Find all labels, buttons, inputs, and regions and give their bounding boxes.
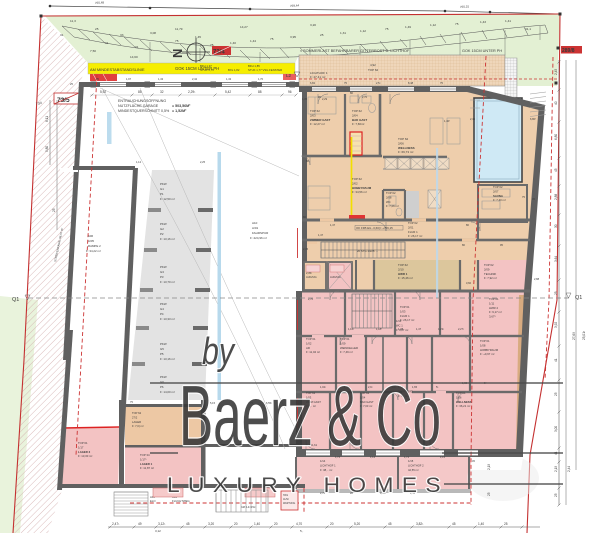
svg-text:1,43: 1,43 (480, 20, 486, 24)
svg-text:1,35: 1,35 (302, 97, 308, 101)
svg-text:2,19: 2,19 (487, 464, 491, 470)
svg-text:7,50: 7,50 (90, 49, 96, 53)
svg-text:F: 13,30 m²: F: 13,30 m² (78, 454, 92, 458)
svg-text:Baerz & Co: Baerz & Co (179, 369, 441, 464)
svg-text:by: by (202, 331, 236, 373)
svg-text:AUSI: AUSI (283, 498, 289, 501)
svg-text:F: 9,17 m²: F: 9,17 m² (489, 310, 502, 314)
svg-text:1/17¹: 1/17¹ (140, 457, 146, 461)
svg-text:25: 25 (487, 492, 491, 496)
svg-text:31,1: 31,1 (525, 27, 531, 31)
svg-text:STUK 1,75: STUK 1,75 (200, 68, 214, 72)
svg-text:AUFZUG: AUFZUG (306, 275, 317, 279)
svg-text:3,00: 3,00 (554, 426, 558, 432)
svg-text:BXL 1,82: BXL 1,82 (228, 68, 240, 72)
svg-text:A10: A10 (252, 221, 258, 225)
svg-text:760,48: 760,48 (95, 0, 105, 5)
svg-text:75: 75 (175, 39, 179, 43)
svg-text:4,70: 4,70 (296, 522, 302, 526)
svg-text:88: 88 (258, 90, 262, 94)
svg-text:F: 12,50 m²: F: 12,50 m² (160, 197, 175, 201)
svg-text:F: 7,92 m²: F: 7,92 m² (484, 276, 497, 280)
svg-text:F: 26,17 m²: F: 26,17 m² (400, 318, 414, 322)
svg-text:1,40: 1,40 (254, 522, 260, 526)
svg-text:1,47: 1,47 (330, 223, 336, 227)
svg-text:3,08: 3,08 (150, 31, 156, 35)
svg-text:= 503,56M²: = 503,56M² (172, 104, 191, 108)
svg-text:1,41: 1,41 (505, 19, 511, 23)
svg-text:A/01: A/01 (252, 226, 259, 230)
svg-text:F: 12,27 m²: F: 12,27 m² (310, 122, 325, 126)
svg-text:WELLNESS: WELLNESS (398, 146, 415, 150)
svg-text:G4: G4 (160, 307, 164, 311)
svg-text:5,20: 5,20 (354, 522, 360, 526)
svg-text:ZIMMER GAST: ZIMMER GAST (310, 118, 330, 122)
svg-text:25: 25 (554, 291, 558, 295)
svg-text:AUFZUG: AUFZUG (330, 275, 341, 279)
svg-text:25: 25 (504, 522, 508, 526)
svg-text:85: 85 (138, 90, 142, 94)
svg-text:BAD GAST: BAD GAST (352, 118, 367, 122)
svg-text:TOP 62: TOP 62 (398, 263, 408, 267)
svg-text:F: 7,0( m²: F: 7,0( m² (132, 424, 144, 428)
svg-text:20: 20 (274, 522, 278, 526)
svg-text:2,29: 2,29 (322, 97, 328, 101)
svg-text:HOBBYRAUM: HOBBYRAUM (480, 348, 499, 352)
svg-text:31: 31 (105, 41, 109, 45)
svg-text:AR: AR (306, 346, 310, 350)
svg-text:WEINKELLER: WEINKELLER (340, 346, 358, 350)
svg-text:31: 31 (135, 45, 139, 49)
svg-text:WARTUNG: WARTUNG (283, 502, 295, 505)
svg-text:TOP 61: TOP 61 (456, 391, 466, 395)
svg-text:TOP 62: TOP 62 (493, 185, 503, 189)
svg-text:25: 25 (320, 33, 324, 37)
svg-text:HWR 1: HWR 1 (398, 272, 408, 276)
svg-text:TOP 62: TOP 62 (132, 411, 142, 415)
svg-text:1/03: 1/03 (400, 309, 406, 313)
svg-text:F: +0,67 m²: F: +0,67 m² (480, 352, 494, 356)
svg-text:4,92: 4,92 (370, 63, 376, 67)
svg-text:G3: G3 (160, 270, 164, 274)
svg-text:NUTZFLÄCHE GARAGE: NUTZFLÄCHE GARAGE (118, 104, 159, 108)
svg-text:PKW: PKW (160, 375, 167, 379)
svg-text:AM MINDESTABSTANDSLINIE: AM MINDESTABSTANDSLINIE (90, 67, 145, 72)
svg-text:1,12: 1,12 (360, 29, 366, 33)
svg-text:6,80³: 6,80³ (530, 117, 536, 121)
svg-text:TOP 62: TOP 62 (352, 109, 362, 113)
svg-text:2/01: 2/01 (408, 225, 414, 229)
svg-text:1,97: 1,97 (126, 77, 132, 81)
svg-text:5,42: 5,42 (225, 90, 231, 94)
svg-text:TOP 61: TOP 61 (400, 305, 410, 309)
svg-text:P5: P5 (160, 352, 164, 356)
svg-text:F: 14,00 m²: F: 14,00 m² (160, 390, 175, 394)
svg-text:LUXURY HOMES: LUXURY HOMES (167, 473, 449, 497)
svg-text:1/08: 1/08 (480, 343, 486, 347)
svg-text:1,31: 1,31 (340, 31, 346, 35)
svg-text:2,88: 2,88 (534, 277, 540, 281)
svg-text:TOP 62: TOP 62 (368, 68, 379, 72)
svg-text:1/10: 1/10 (396, 319, 402, 323)
svg-text:FAHRSPUR: FAHRSPUR (252, 231, 269, 235)
svg-text:1,38: 1,38 (398, 327, 404, 331)
svg-text:5,.: 5,. (300, 529, 304, 533)
svg-text:1,12: 1,12 (136, 160, 142, 164)
svg-text:TOP 34: TOP 34 (140, 453, 150, 457)
svg-text:HOBBYRAUM: HOBBYRAUM (352, 186, 372, 190)
svg-text:27,69: 27,69 (572, 332, 576, 340)
svg-text:TOP 62: TOP 62 (408, 221, 418, 225)
svg-text:2,35: 2,35 (303, 247, 309, 251)
svg-text:LAGER 2: LAGER 2 (78, 450, 91, 454)
svg-text:3,82¹: 3,82¹ (416, 522, 423, 526)
svg-text:1,18³: 1,18³ (376, 327, 382, 331)
svg-text:11,79: 11,79 (175, 27, 183, 31)
svg-text:A06: A06 (88, 234, 94, 238)
svg-text:AM 3-4=15m: AM 3-4=15m (241, 505, 256, 509)
svg-text:F: 7,40 m²: F: 7,40 m² (493, 198, 506, 202)
svg-text:2,19: 2,19 (554, 466, 558, 472)
svg-text:2,35¹: 2,35¹ (306, 271, 312, 275)
svg-text:1/11: 1/11 (489, 301, 495, 305)
svg-text:F: 34,56 m²: F: 34,56 m² (352, 190, 367, 194)
svg-text:PKW: PKW (160, 222, 167, 226)
svg-text:TOP 62: TOP 62 (386, 191, 396, 195)
svg-text:F: 36,21 m²: F: 36,21 m² (456, 404, 470, 408)
svg-text:F: 224,96 m²: F: 224,96 m² (250, 236, 267, 240)
svg-text:11,3: 11,3 (70, 19, 76, 23)
svg-text:G5: G5 (160, 347, 164, 351)
svg-text:LAGER: LAGER (132, 420, 141, 424)
svg-text:30: 30 (554, 224, 558, 228)
svg-text:1,43: 1,43 (158, 77, 164, 81)
svg-text:WC 1: WC 1 (396, 323, 403, 327)
svg-text:TOP 61: TOP 61 (340, 337, 350, 341)
svg-text:6,80: 6,80 (554, 134, 558, 140)
svg-text:F: 7,06 m²: F: 7,06 m² (386, 204, 399, 208)
svg-text:P6: P6 (160, 385, 164, 389)
svg-text:F: 13,33 m²: F: 13,33 m² (160, 317, 175, 321)
svg-text:20 STG 14/28 →: 20 STG 14/28 → (357, 249, 378, 253)
svg-text:3,20: 3,20 (310, 23, 316, 27)
svg-text:40: 40 (554, 101, 558, 105)
svg-text:F: 34,22 m²: F: 34,22 m² (86, 249, 101, 253)
svg-text:2,45: 2,45 (554, 69, 558, 75)
svg-text:1,49: 1,49 (405, 25, 411, 29)
svg-text:F: 13,70 m²: F: 13,70 m² (160, 280, 175, 284)
svg-text:3,20: 3,20 (208, 522, 214, 526)
svg-text:5,80: 5,80 (45, 146, 49, 152)
svg-text:3,12: 3,12 (155, 529, 161, 533)
svg-text:45: 45 (186, 522, 190, 526)
svg-text:3,60: 3,60 (466, 281, 472, 285)
svg-text:96: 96 (288, 90, 292, 94)
svg-text:45: 45 (452, 522, 456, 526)
svg-text:P3: P3 (160, 275, 164, 279)
svg-text:2/08: 2/08 (386, 195, 392, 199)
svg-text:27/2: 27/2 (132, 415, 138, 419)
svg-text:LAGER 1: LAGER 1 (140, 462, 153, 466)
svg-text:2,27¹: 2,27¹ (458, 327, 464, 331)
svg-text:TECHNIK: TECHNIK (484, 272, 496, 276)
svg-text:2,70: 2,70 (308, 297, 314, 301)
svg-text:5,92: 5,92 (100, 90, 106, 94)
svg-text:F: 69,73 m²: F: 69,73 m² (398, 150, 413, 154)
svg-text:2/03: 2/03 (310, 113, 316, 117)
svg-text:2/04: 2/04 (352, 113, 358, 117)
svg-text:49: 49 (138, 522, 142, 526)
svg-text:1,23¹: 1,23¹ (438, 327, 444, 331)
svg-text:PKW: PKW (160, 302, 167, 306)
svg-text:14,27: 14,27 (240, 25, 248, 29)
svg-text:1,16¹: 1,16¹ (348, 327, 354, 331)
svg-text:3,67³: 3,67³ (489, 315, 495, 319)
svg-text:73/4: 73/4 (213, 50, 225, 56)
svg-text:≈ SOMMERLAST BEFAHRBARER GITTE: ≈ SOMMERLAST BEFAHRBARER GITTERROST Ü. L… (300, 49, 410, 53)
svg-text:2/06: 2/06 (398, 141, 404, 145)
svg-text:Q1: Q1 (12, 297, 19, 303)
svg-text:2,50: 2,50 (60, 97, 66, 101)
svg-text:31: 31 (60, 33, 64, 37)
svg-text:N: N (170, 49, 185, 58)
svg-text:LICHTHOF 2: LICHTHOF 2 (408, 463, 424, 467)
svg-text:25: 25 (554, 493, 558, 497)
svg-text:ELO: ELO (150, 499, 156, 503)
svg-text:289/8: 289/8 (562, 48, 575, 54)
svg-text:2,42: 2,42 (192, 77, 198, 81)
svg-text:WELLNESS: WELLNESS (456, 400, 472, 404)
svg-text:25,01³: 25,01³ (582, 331, 586, 340)
svg-text:20: 20 (234, 522, 238, 526)
svg-text:TOP 62: TOP 62 (484, 263, 494, 267)
svg-text:LICHTHOF 1: LICHTHOF 1 (320, 463, 336, 467)
svg-text:ENTRAUCHUNGSÖFFNUNG: ENTRAUCHUNGSÖFFNUNG (118, 99, 166, 103)
svg-text:75: 75 (385, 27, 389, 31)
svg-text:P4: P4 (160, 312, 164, 316)
svg-text:1/09: 1/09 (340, 341, 346, 345)
svg-text:1,12: 1,12 (430, 23, 436, 27)
svg-text:2,45: 2,45 (470, 117, 476, 121)
svg-text:F: 11,87 m²: F: 11,87 m² (140, 466, 154, 470)
svg-text:= 1,52M²: = 1,52M² (172, 109, 187, 113)
svg-text:TOP 62: TOP 62 (398, 137, 409, 141)
svg-text:3,95: 3,95 (290, 35, 296, 39)
svg-text:2,5¹: 2,5¹ (376, 81, 381, 85)
svg-text:2,25: 2,25 (200, 160, 206, 164)
svg-text:P2: P2 (160, 232, 164, 236)
svg-text:WC: WC (386, 200, 391, 204)
svg-text:3,64: 3,64 (554, 256, 558, 262)
svg-text:1,43: 1,43 (226, 77, 232, 81)
svg-text:14,60: 14,60 (130, 55, 138, 59)
svg-text:1,40³: 1,40³ (444, 119, 450, 123)
svg-text:2/10: 2/10 (398, 267, 404, 271)
svg-text:GOK 15CM UNTER PH: GOK 15CM UNTER PH (462, 49, 502, 53)
svg-text:G1: G1 (160, 187, 164, 191)
svg-text:F: 26,17 m²: F: 26,17 m² (408, 234, 422, 238)
svg-text:HWR 2: HWR 2 (489, 306, 498, 310)
svg-text:1/06: 1/06 (456, 395, 462, 399)
svg-text:STUK 1,77 VSG FENSTER: STUK 1,77 VSG FENSTER (248, 68, 282, 72)
svg-text:45: 45 (554, 168, 558, 172)
svg-text:FLUR 1: FLUR 1 (400, 314, 410, 318)
svg-text:2/07: 2/07 (493, 189, 499, 193)
svg-text:45: 45 (388, 522, 392, 526)
svg-text:PKW: PKW (160, 342, 167, 346)
svg-text:TOP 62: TOP 62 (310, 109, 320, 113)
svg-text:RAMPE 2: RAMPE 2 (88, 244, 101, 248)
svg-text:F: 7,66m²: F: 7,66m² (352, 122, 364, 126)
svg-text:41: 41 (554, 358, 558, 362)
svg-text:G2: G2 (160, 227, 164, 231)
svg-text:1/17: 1/17 (78, 445, 84, 449)
svg-text:75: 75 (270, 37, 274, 41)
svg-text:25: 25 (52, 208, 56, 212)
svg-text:2,88: 2,88 (554, 194, 558, 200)
svg-text:F: 38,.. m²: F: 38,.. m² (320, 468, 332, 472)
svg-text:F: 13,16 m²: F: 13,16 m² (160, 357, 175, 361)
svg-text:FLUCHTWEG: FLUCHTWEG (172, 499, 190, 503)
svg-text:3,12¹: 3,12¹ (158, 522, 165, 526)
svg-text:MINDESTQUERSCHNITT 0,5%: MINDESTQUERSCHNITT 0,5% (118, 109, 170, 113)
svg-text:1,44: 1,44 (250, 39, 256, 43)
svg-text:42,55 m²: 42,55 m² (408, 468, 419, 472)
svg-text:2,29¹: 2,29¹ (188, 90, 195, 94)
svg-text:25: 25 (554, 392, 558, 396)
svg-text:P1: P1 (160, 192, 164, 196)
svg-text:32: 32 (160, 90, 164, 94)
svg-text:F: 7,49 m²: F: 7,49 m² (340, 350, 353, 354)
svg-text:75: 75 (455, 22, 459, 26)
svg-text:F: 27,41 m²: F: 27,41 m² (310, 75, 325, 79)
svg-text:760,31: 760,31 (460, 4, 470, 9)
svg-text:3,92: 3,92 (554, 322, 558, 328)
svg-text:2/09: 2/09 (484, 267, 490, 271)
svg-text:2,44: 2,44 (567, 466, 571, 472)
svg-text:TOP 61: TOP 61 (306, 337, 316, 341)
svg-text:2/02: 2/02 (352, 181, 358, 185)
svg-text:1,40: 1,40 (230, 41, 236, 45)
svg-text:1/02: 1/02 (306, 341, 312, 345)
svg-text:1,47: 1,47 (318, 233, 324, 237)
svg-text:8,11: 8,11 (45, 116, 49, 122)
svg-text:OK FFB EG -3,60(= +759,15: OK FFB EG -3,60(= +759,15 (356, 226, 393, 230)
svg-text:25: 25 (95, 27, 99, 31)
svg-text:33: 33 (120, 33, 124, 37)
svg-text:1,40: 1,40 (478, 522, 484, 526)
svg-text:1,70: 1,70 (258, 77, 264, 81)
svg-text:TOP 61: TOP 61 (78, 441, 88, 445)
svg-text:TOP 62: TOP 62 (352, 177, 362, 181)
svg-text:2,47¹: 2,47¹ (112, 522, 119, 526)
svg-text:PKW: PKW (160, 265, 167, 269)
svg-text:1,47: 1,47 (416, 327, 422, 331)
svg-text:A/05: A/05 (88, 239, 94, 243)
svg-text:F: 13,16 m²: F: 13,16 m² (160, 237, 175, 241)
svg-text:TOP 61: TOP 61 (480, 339, 490, 343)
svg-text:TOP 61: TOP 61 (489, 297, 499, 301)
svg-text:769,44: 769,44 (290, 3, 300, 8)
svg-text:SAUNA: SAUNA (493, 194, 503, 198)
svg-text:PKW: PKW (160, 182, 167, 186)
svg-text:F: 11,04 m²: F: 11,04 m² (306, 350, 320, 354)
svg-text:FLUR 1: FLUR 1 (408, 230, 418, 234)
svg-text:F: 15,46 m²: F: 15,46 m² (398, 276, 413, 280)
svg-text:2,70: 2,70 (362, 95, 368, 99)
svg-text:6,82: 6,82 (310, 81, 316, 85)
svg-text:L2: L2 (286, 73, 292, 78)
svg-text:8,48: 8,48 (408, 81, 414, 85)
svg-text:20: 20 (330, 522, 334, 526)
